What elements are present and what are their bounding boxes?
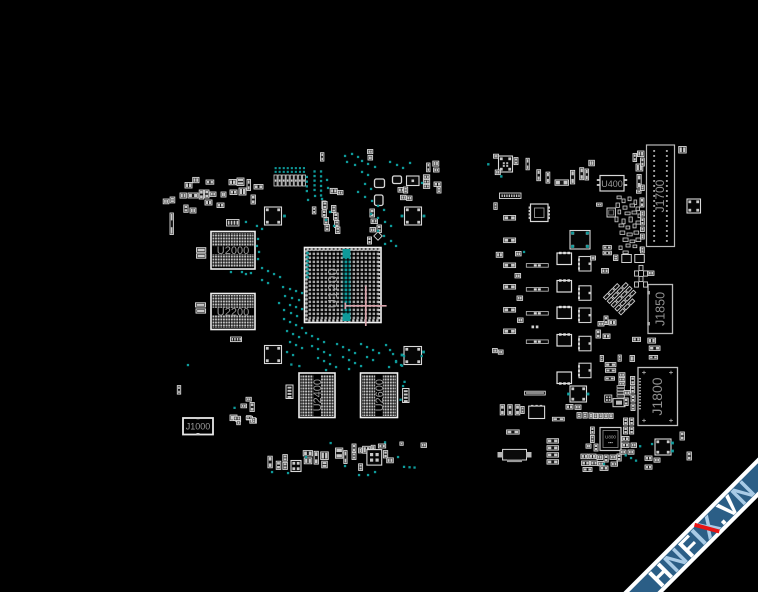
- svg-text:J1000: J1000: [186, 422, 211, 432]
- svg-text:U2400: U2400: [312, 379, 324, 411]
- svg-text:U2000: U2000: [217, 245, 249, 257]
- svg-text:J1800: J1800: [649, 377, 665, 415]
- svg-text:U2200: U2200: [217, 306, 249, 318]
- svg-text:▪▪▪: ▪▪▪: [608, 440, 613, 445]
- svg-text:U1200: U1200: [325, 268, 340, 309]
- svg-text:U400: U400: [601, 179, 623, 189]
- svg-text:U800: U800: [605, 435, 616, 440]
- svg-text:J1700: J1700: [653, 179, 667, 212]
- svg-text:U2600: U2600: [374, 379, 386, 411]
- svg-text:J1850: J1850: [654, 292, 668, 326]
